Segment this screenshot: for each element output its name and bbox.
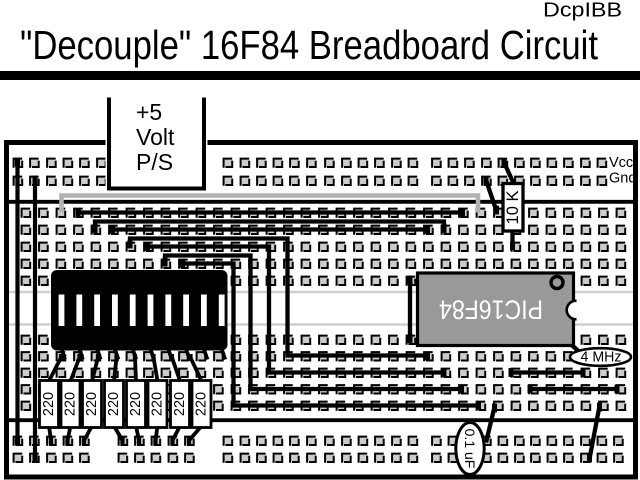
svg-text:220: 220 [194, 392, 210, 416]
svg-text:220: 220 [84, 392, 100, 416]
svg-text:220: 220 [63, 392, 79, 416]
svg-text:"Decouple" 16F84 Breadboard Ci: "Decouple" 16F84 Breadboard Circuit [20, 22, 599, 68]
svg-text:Volt: Volt [136, 124, 175, 150]
svg-text:Gnd: Gnd [609, 171, 636, 187]
svg-text:4 MHz: 4 MHz [581, 350, 622, 366]
svg-text:220: 220 [128, 392, 144, 416]
svg-text:10 K: 10 K [504, 191, 522, 225]
svg-text:0.1 uF: 0.1 uF [462, 429, 478, 469]
svg-text:P/S: P/S [136, 149, 173, 175]
svg-text:Vcc: Vcc [609, 155, 633, 171]
svg-text:220: 220 [41, 392, 57, 416]
svg-text:220: 220 [106, 392, 122, 416]
svg-text:+5: +5 [136, 99, 162, 125]
svg-text:220: 220 [172, 392, 188, 416]
svg-text:DcpIBB: DcpIBB [543, 0, 622, 22]
svg-text:PIC16F84: PIC16F84 [439, 295, 543, 325]
svg-text:220: 220 [150, 392, 166, 416]
